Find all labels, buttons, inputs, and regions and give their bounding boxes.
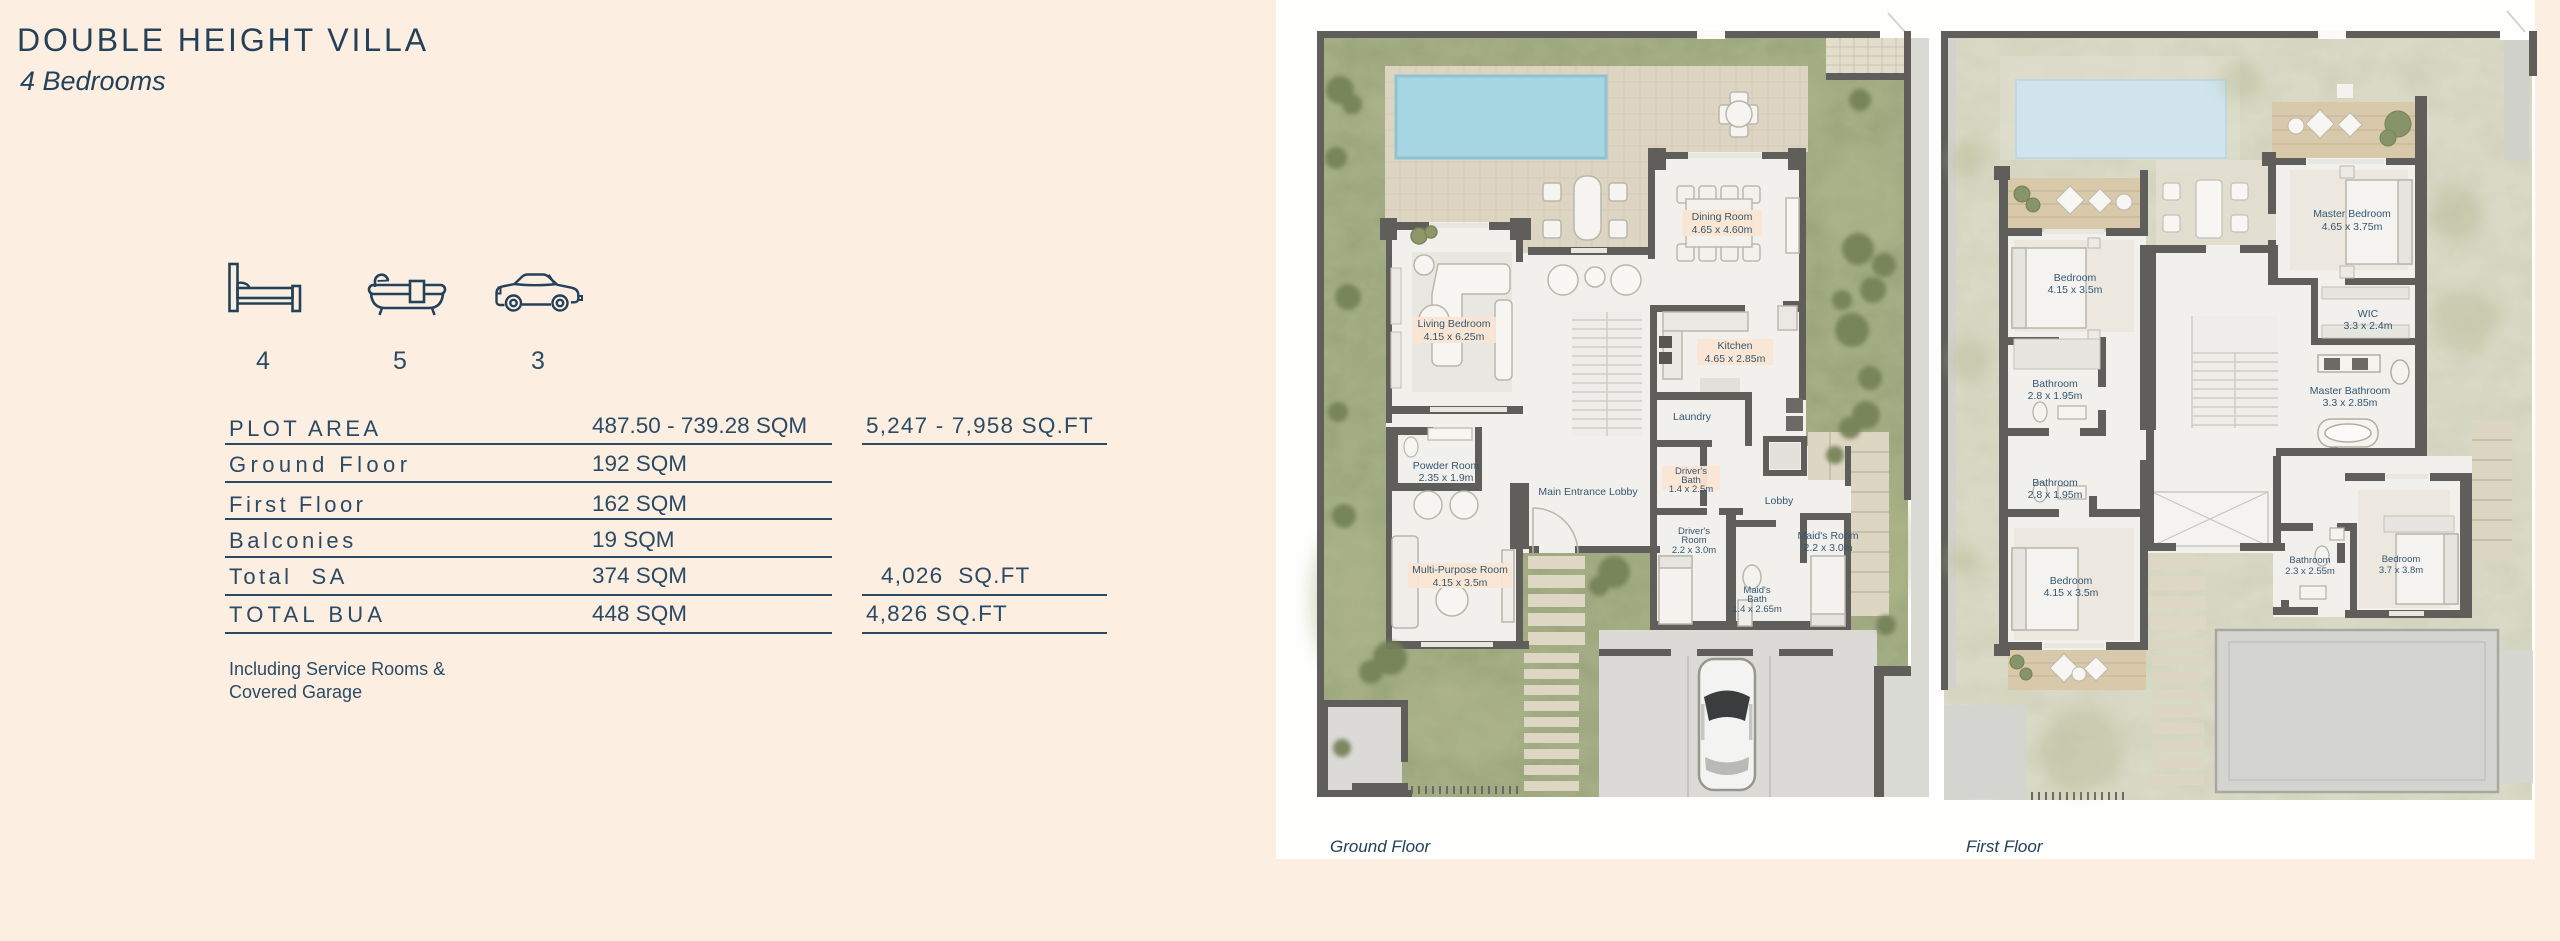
svg-text:2.8 x 1.95m: 2.8 x 1.95m (2028, 390, 2083, 402)
svg-text:1.4 x 2.65m: 1.4 x 2.65m (1732, 604, 1782, 615)
svg-text:4.65 x 3.75m: 4.65 x 3.75m (2322, 221, 2383, 233)
svg-text:Dining Room: Dining Room (1692, 211, 1753, 223)
svg-text:4.15 x 3.5m: 4.15 x 3.5m (1433, 577, 1488, 589)
svg-text:Laundry: Laundry (1673, 411, 1712, 423)
svg-text:2.2 x 3.0m: 2.2 x 3.0m (1672, 545, 1716, 556)
svg-text:Bathroom: Bathroom (2289, 555, 2330, 566)
svg-text:4.65 x 4.60m: 4.65 x 4.60m (1692, 224, 1753, 236)
svg-text:Kitchen: Kitchen (1717, 340, 1752, 352)
svg-text:Bedroom: Bedroom (2382, 554, 2421, 565)
svg-text:Bathroom: Bathroom (2032, 477, 2078, 489)
svg-text:Main Entrance Lobby: Main Entrance Lobby (1538, 486, 1638, 498)
svg-text:3.3 x 2.85m: 3.3 x 2.85m (2323, 397, 2378, 409)
svg-text:Multi-Purpose Room: Multi-Purpose Room (1412, 564, 1508, 576)
svg-text:Powder Room: Powder Room (1413, 460, 1480, 472)
svg-text:4.15 x 3.5m: 4.15 x 3.5m (2044, 587, 2099, 599)
svg-text:Living Bedroom: Living Bedroom (1418, 318, 1491, 330)
svg-text:Ground Floor: Ground Floor (1330, 837, 1431, 856)
svg-text:Bathroom: Bathroom (2032, 378, 2078, 390)
svg-text:3.7 x 3.8m: 3.7 x 3.8m (2379, 565, 2423, 576)
svg-text:Lobby: Lobby (1765, 495, 1794, 507)
svg-text:Bedroom: Bedroom (2050, 575, 2093, 587)
svg-text:4.15 x 6.25m: 4.15 x 6.25m (1424, 331, 1485, 343)
svg-text:4.65 x 2.85m: 4.65 x 2.85m (1705, 353, 1766, 365)
svg-text:1.4 x 2.5m: 1.4 x 2.5m (1669, 484, 1713, 495)
svg-text:Master Bedroom: Master Bedroom (2313, 208, 2391, 220)
svg-text:2.3 x 2.55m: 2.3 x 2.55m (2285, 566, 2335, 577)
svg-text:WIC: WIC (2358, 308, 2379, 320)
svg-text:Master Bathroom: Master Bathroom (2310, 385, 2391, 397)
svg-text:First Floor: First Floor (1966, 837, 2044, 856)
svg-text:2.35 x 1.9m: 2.35 x 1.9m (1419, 472, 1474, 484)
svg-text:Maid's Room: Maid's Room (1798, 530, 1859, 542)
svg-text:3.3 x 2.4m: 3.3 x 2.4m (2343, 320, 2392, 332)
svg-text:4.15 x 3.5m: 4.15 x 3.5m (2048, 284, 2103, 296)
svg-text:2.2 x 3.0m: 2.2 x 3.0m (1803, 542, 1852, 554)
svg-text:Bedroom: Bedroom (2054, 272, 2097, 284)
svg-text:2.8 x 1.95m: 2.8 x 1.95m (2028, 489, 2083, 501)
